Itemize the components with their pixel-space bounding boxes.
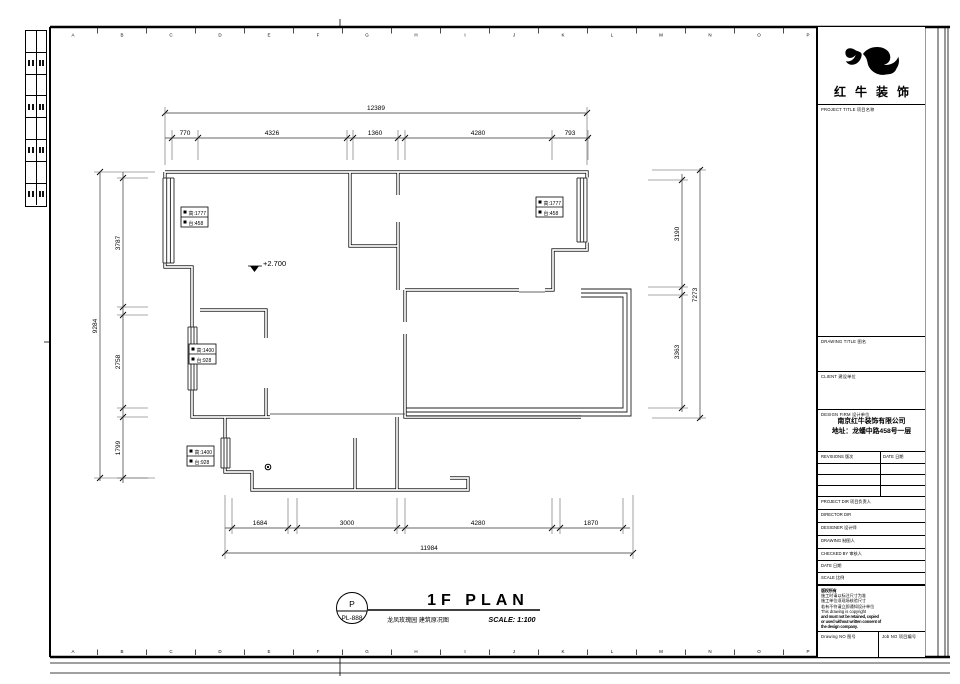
svg-text:4326: 4326 [265, 130, 280, 137]
revision-edge-strip [25, 30, 47, 207]
window-left-top [162, 178, 176, 264]
grid-letter-bottom: D [218, 649, 222, 654]
svg-text:台:928: 台:928 [195, 459, 210, 466]
grid-letter-bottom: B [120, 649, 123, 654]
grid-letter-top: D [218, 33, 222, 38]
drawing-no-label: Drawing NO 图号 [818, 632, 878, 639]
brand-name: 红牛装饰 [825, 83, 918, 100]
grid-letter-top: I [464, 33, 465, 38]
edge-strip-cell [36, 75, 47, 96]
window-left-bottom [220, 438, 231, 469]
dim-total-right: 7273 [692, 287, 699, 302]
svg-text:高:1777: 高:1777 [544, 200, 562, 207]
edge-strip-row [26, 75, 46, 97]
drawing-number-cell: Drawing NO 图号 Job NO 项目编号 [818, 632, 925, 657]
grid-letters-top: ABCDEFGHIJKLMNOP [71, 28, 809, 38]
door-thresholds [270, 292, 545, 414]
svg-text:+2.700: +2.700 [263, 259, 286, 268]
grid-letter-top: M [659, 33, 663, 38]
svg-text:3000: 3000 [340, 520, 355, 527]
edge-strip-row [26, 118, 46, 140]
edge-strip-cell [26, 118, 36, 139]
revisions-label: REVISIONS 版次 [818, 452, 880, 463]
grid-letter-bottom: P [806, 649, 809, 654]
drawing-no-cell: Drawing NO 图号 [818, 632, 878, 657]
job-no-cell: Job NO 项目编号 [878, 632, 925, 657]
door-circle-symbol [265, 464, 271, 470]
edge-strip-cell [36, 31, 47, 52]
sheet-frame [50, 27, 950, 673]
project-title-label: PROJECT TITLE 项目名称 [818, 105, 925, 112]
edge-strip-cell [36, 118, 47, 139]
floorplan-sheet-svg: ABCDEFGHIJKLMNOP ABCDEFGHIJKLMNOP [0, 0, 960, 684]
edge-strip-row [26, 140, 46, 162]
grid-letter-bottom: I [464, 649, 465, 654]
svg-text:台:928: 台:928 [197, 357, 212, 364]
job-no-label: Job NO 项目编号 [879, 632, 925, 639]
svg-text:770: 770 [180, 130, 191, 137]
window-size-label: 高:1400 台:928 [189, 344, 216, 364]
logo-cell: 红牛装饰 [818, 27, 925, 105]
revision-row [818, 475, 925, 486]
svg-text:4280: 4280 [471, 130, 486, 137]
plan-subtitle: 龙凤玫瑰园 建筑原况图 [387, 616, 449, 624]
grid-letter-top: J [513, 33, 515, 38]
revision-row [818, 486, 925, 497]
edge-strip-cell [26, 96, 36, 117]
svg-text:3787: 3787 [115, 235, 122, 250]
grid-letter-bottom: K [561, 649, 564, 654]
svg-text:1684: 1684 [253, 520, 268, 527]
edge-strip-row [26, 53, 46, 75]
client-cell: CLIENT 建设单位 [818, 372, 925, 410]
edge-strip-cell [36, 162, 47, 183]
edge-strip-cell [26, 184, 36, 206]
stamp-number: PL-888 [342, 615, 363, 622]
dim-total-bottom: 11984 [420, 545, 438, 552]
edge-strip-cell [26, 75, 36, 96]
signature-rows: PROJECT DIR 项目负责人 DIRECTOR DIR DESIGNER … [818, 497, 925, 585]
director-row: DIRECTOR DIR [818, 510, 925, 523]
date-row: DATE 日期 [818, 561, 925, 573]
svg-text:台:458: 台:458 [189, 220, 204, 227]
edge-strip-cell [36, 184, 47, 206]
grid-letter-top: F [317, 33, 320, 38]
designer-row: DESIGNER 设计师 [818, 523, 925, 536]
firm-name: 南京红牛装饰有限公司 [818, 417, 925, 427]
edge-strip-row [26, 162, 46, 184]
title-block: 红牛装饰 PROJECT TITLE 项目名称 DRAWING TITLE 图名… [818, 27, 925, 657]
grid-letter-top: B [120, 33, 123, 38]
elevation-marker: +2.700 [248, 259, 286, 272]
grid-letter-bottom: C [169, 649, 173, 654]
window-size-label: 高:1777 台:458 [181, 207, 208, 227]
svg-text:3190: 3190 [674, 226, 681, 241]
window-right-top [576, 178, 589, 243]
grid-letter-top: E [267, 33, 270, 38]
edge-strip-cell [26, 140, 36, 161]
window-size-labels: 高:1777 台:458 高:1777 台:458 高:1400 台:928 高… [181, 197, 563, 466]
svg-text:高:1777: 高:1777 [189, 210, 207, 217]
notes-cell: 版权所有施工时请以标注尺寸为准施工单位须现场核验尺寸若有不符请立即通知设计单位T… [818, 585, 925, 632]
svg-text:高:1400: 高:1400 [195, 449, 213, 456]
checked-by-row: CHECKED BY 审核人 [818, 549, 925, 561]
edge-strip-cell [26, 162, 36, 183]
edge-strip-cell [26, 31, 36, 52]
grid-letter-bottom: F [317, 649, 320, 654]
grid-letter-top: H [414, 33, 417, 38]
drawing-sheet: ABCDEFGHIJKLMNOP ABCDEFGHIJKLMNOP [0, 0, 960, 684]
svg-text:3363: 3363 [674, 344, 681, 359]
project-dir-row: PROJECT DIR 项目负责人 [818, 497, 925, 510]
grid-letter-top: O [757, 33, 761, 38]
dim-total-left: 9284 [92, 318, 99, 333]
note-line: the design company. [821, 624, 922, 629]
edge-strip-cell [36, 53, 47, 74]
drawing-title-label: DRAWING TITLE 图名 [818, 337, 925, 344]
grid-letter-bottom: N [708, 649, 711, 654]
grid-letter-top: C [169, 33, 173, 38]
plan-footer: P PL-888 1F PLAN 龙凤玫瑰园 建筑原况图 SCALE: 1:10… [337, 592, 541, 624]
project-title-cell: PROJECT TITLE 项目名称 [818, 105, 925, 337]
edge-strip-row [26, 96, 46, 118]
grid-letters-bottom: ABCDEFGHIJKLMNOP [71, 649, 809, 655]
svg-text:4280: 4280 [471, 520, 486, 527]
grid-letter-bottom: J [513, 649, 515, 654]
design-firm-cell: DESIGN FIRM 设计单位 南京红牛装饰有限公司 地址：龙蟠中路458号一… [818, 410, 925, 452]
window-size-label: 高:1777 台:458 [536, 197, 563, 217]
grid-letter-top: G [365, 33, 369, 38]
grid-letter-bottom: A [71, 649, 74, 654]
grid-letter-top: K [561, 33, 564, 38]
balcony-railing [406, 289, 631, 416]
client-label: CLIENT 建设单位 [818, 372, 925, 379]
revision-date-label: DATE 日期 [880, 452, 925, 463]
window-size-label: 高:1400 台:928 [187, 446, 214, 466]
rednow-bull-logo [843, 43, 901, 83]
design-firm-label: DESIGN FIRM 设计单位 [818, 410, 925, 417]
svg-text:高:1400: 高:1400 [197, 347, 215, 354]
drawing-by-row: DRAWING 制图人 [818, 536, 925, 549]
plan-title: 1F PLAN [427, 592, 529, 609]
edge-strip-cell [36, 140, 47, 161]
stamp-letter: P [349, 599, 355, 609]
grid-letter-top: L [611, 33, 614, 38]
grid-letter-top: P [806, 33, 809, 38]
grid-letter-bottom: O [757, 649, 761, 654]
edge-strip-cell [26, 53, 36, 74]
stamp-circle: P PL-888 [337, 593, 368, 624]
grid-letter-bottom: E [267, 649, 270, 654]
svg-text:1360: 1360 [368, 130, 383, 137]
grid-letter-bottom: H [414, 649, 417, 654]
scale-row: SCALE 比例 [818, 573, 925, 585]
grid-letter-top: N [708, 33, 711, 38]
edge-strip-cell [36, 96, 47, 117]
drawing-title-cell: DRAWING TITLE 图名 [818, 337, 925, 372]
svg-text:793: 793 [565, 130, 576, 137]
svg-text:台:458: 台:458 [544, 210, 559, 217]
grid-letter-bottom: G [365, 649, 369, 654]
revisions-divider [880, 452, 881, 496]
edge-strip-row [26, 31, 46, 53]
svg-text:2758: 2758 [115, 354, 122, 369]
grid-letter-top: A [71, 33, 74, 38]
revisions-table: REVISIONS 版次 DATE 日期 [818, 452, 925, 497]
svg-text:1799: 1799 [115, 440, 122, 455]
grid-letter-bottom: L [611, 649, 614, 654]
revision-row [818, 464, 925, 475]
grid-letter-bottom: M [659, 649, 663, 654]
plan-scale: SCALE: 1:100 [488, 615, 535, 624]
edge-strip-row [26, 184, 46, 206]
firm-address: 地址：龙蟠中路458号一层 [818, 427, 925, 437]
dim-total-top: 12389 [367, 105, 385, 112]
svg-text:1870: 1870 [584, 520, 599, 527]
